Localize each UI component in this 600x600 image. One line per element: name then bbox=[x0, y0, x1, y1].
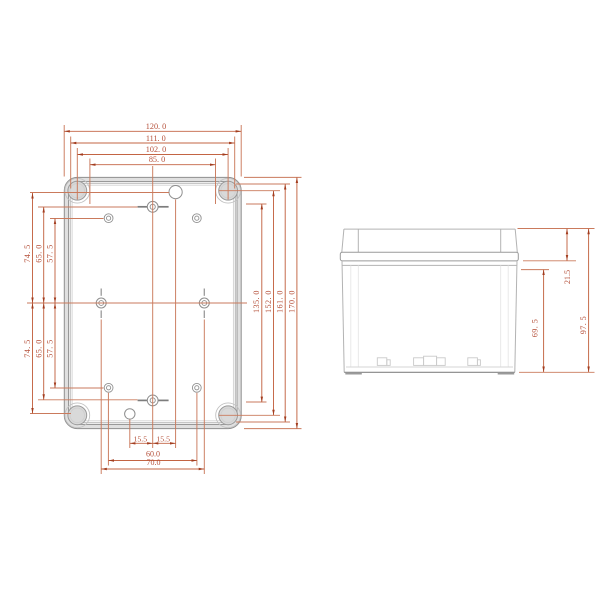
svg-text:170. 0: 170. 0 bbox=[287, 290, 296, 313]
svg-text:74. 5: 74. 5 bbox=[23, 244, 32, 262]
svg-text:15.5: 15.5 bbox=[156, 434, 170, 443]
svg-text:21.5: 21.5 bbox=[563, 270, 572, 284]
svg-text:111. 0: 111. 0 bbox=[146, 134, 166, 143]
svg-text:70.0: 70.0 bbox=[147, 458, 161, 467]
svg-text:161. 0: 161. 0 bbox=[276, 290, 285, 313]
svg-text:65. 0: 65. 0 bbox=[34, 244, 43, 262]
svg-text:97. 5: 97. 5 bbox=[579, 316, 588, 334]
svg-text:57. 5: 57. 5 bbox=[46, 339, 55, 357]
svg-text:65. 0: 65. 0 bbox=[34, 339, 43, 357]
svg-text:102. 0: 102. 0 bbox=[146, 145, 166, 154]
svg-text:120. 0: 120. 0 bbox=[146, 122, 166, 131]
svg-text:57. 5: 57. 5 bbox=[46, 244, 55, 262]
svg-text:152. 0: 152. 0 bbox=[264, 290, 273, 313]
svg-text:15.5: 15.5 bbox=[133, 434, 147, 443]
svg-text:74. 5: 74. 5 bbox=[23, 339, 32, 357]
svg-text:85. 0: 85. 0 bbox=[149, 155, 165, 164]
svg-text:69. 5: 69. 5 bbox=[530, 319, 539, 337]
svg-text:135. 0: 135. 0 bbox=[252, 290, 261, 313]
